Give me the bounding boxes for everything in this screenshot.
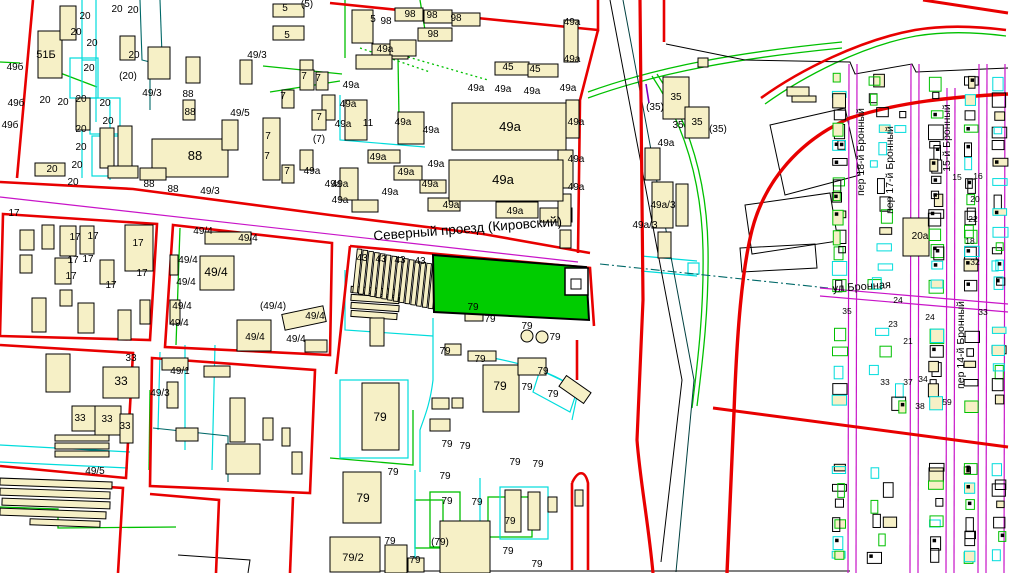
building-number-label: 20 bbox=[75, 124, 87, 135]
building-number-label: 49а bbox=[524, 86, 541, 97]
building-number-label: 20 bbox=[128, 50, 140, 61]
building-number-label: (49/4) bbox=[260, 301, 286, 312]
building-number-label: 7 bbox=[315, 73, 321, 84]
building-number-label: 43 bbox=[394, 255, 406, 266]
building-number-label: 51Б bbox=[36, 49, 55, 61]
building-number-label: 79 bbox=[521, 382, 533, 393]
building bbox=[351, 302, 399, 311]
small-parcel bbox=[992, 464, 1001, 476]
tank-building bbox=[536, 331, 548, 343]
building-number-label: 79 bbox=[509, 457, 521, 468]
building-number-label: 20 bbox=[75, 94, 87, 105]
small-building bbox=[933, 539, 937, 543]
small-parcel bbox=[965, 331, 980, 342]
small-parcel bbox=[931, 329, 944, 342]
building-number-label: 49а bbox=[398, 167, 415, 178]
building-number-label: 49а bbox=[428, 159, 445, 170]
building-number-label: 17 bbox=[132, 238, 144, 249]
building-number-label: (35) bbox=[709, 124, 727, 135]
building-number-label: 79 bbox=[549, 332, 561, 343]
building-number-label: 33 bbox=[125, 353, 137, 364]
building-number-label: 49а bbox=[507, 206, 524, 217]
building-number-label: (20) bbox=[119, 71, 137, 82]
building-number-label: 35 bbox=[691, 117, 703, 128]
small-building bbox=[835, 212, 839, 216]
small-parcel bbox=[900, 112, 906, 118]
building bbox=[55, 435, 109, 441]
building-number-label: 24 bbox=[925, 312, 935, 322]
small-parcel bbox=[965, 551, 975, 562]
small-building bbox=[933, 193, 937, 197]
small-building bbox=[968, 502, 972, 506]
highlighted-parcel[interactable] bbox=[433, 255, 589, 320]
map-canvas: 51Б49б49б49б20202020202020(20)2020202020… bbox=[0, 0, 1009, 573]
building-number-label: 7 bbox=[265, 131, 271, 142]
small-parcel bbox=[833, 123, 843, 136]
small-parcel bbox=[929, 361, 939, 371]
building-number-label: 45 bbox=[502, 62, 514, 73]
building-number-label: 5 bbox=[284, 30, 290, 41]
building-number-label: 7 bbox=[264, 151, 270, 162]
small-parcel bbox=[994, 517, 1005, 528]
building-number-label: 49а/3 bbox=[650, 200, 675, 211]
building-number-label: 49а bbox=[658, 138, 675, 149]
building bbox=[78, 303, 94, 333]
building-number-label: 49а bbox=[468, 83, 485, 94]
building-number-label: 49/5 bbox=[230, 108, 250, 119]
building-number-label: 49а bbox=[568, 154, 585, 165]
building-number-label: 35 bbox=[670, 92, 682, 103]
building-number-label: 49а bbox=[423, 125, 440, 136]
building-number-label: 17 bbox=[69, 232, 81, 243]
building bbox=[792, 96, 816, 102]
building-number-label: 49а bbox=[422, 179, 439, 190]
building-number-label: 49а bbox=[568, 182, 585, 193]
building-number-label: 79 bbox=[387, 467, 399, 478]
building bbox=[42, 225, 54, 249]
small-building bbox=[996, 279, 1000, 283]
small-building bbox=[936, 249, 940, 253]
building bbox=[222, 120, 238, 150]
small-parcel bbox=[992, 345, 1004, 355]
small-parcel bbox=[995, 366, 1003, 379]
small-parcel bbox=[832, 262, 846, 276]
building-number-label: 20 bbox=[75, 142, 87, 153]
small-parcel bbox=[877, 244, 891, 251]
map-viewport[interactable]: 51Б49б49б49б20202020202020(20)2020202020… bbox=[0, 0, 1009, 573]
building-number-label: 11 bbox=[363, 118, 374, 129]
street-name-label: пер 17-й Бронный bbox=[884, 126, 896, 214]
small-parcel bbox=[992, 261, 998, 271]
small-parcel bbox=[833, 537, 843, 550]
building-number-label: 49/4 bbox=[176, 277, 196, 288]
building-number-label: 49а bbox=[332, 195, 349, 206]
building-number-label: (79) bbox=[431, 537, 449, 548]
small-building bbox=[932, 348, 936, 352]
building-number-label: 98 bbox=[404, 9, 416, 20]
small-parcel bbox=[883, 517, 896, 527]
building-number-label: 88 bbox=[143, 179, 155, 190]
small-parcel bbox=[838, 484, 845, 498]
building-number-label: 32 bbox=[970, 257, 980, 267]
building bbox=[452, 398, 463, 408]
building-number-label: 49/4 bbox=[204, 265, 228, 279]
small-parcel bbox=[835, 328, 846, 340]
building bbox=[148, 47, 170, 79]
building-number-label: 16 bbox=[973, 171, 983, 181]
small-building bbox=[835, 539, 839, 543]
building bbox=[0, 488, 110, 499]
small-parcel bbox=[965, 95, 975, 106]
building bbox=[559, 376, 591, 404]
small-parcel bbox=[992, 327, 1006, 333]
small-building bbox=[835, 143, 839, 147]
building-number-label: 98 bbox=[380, 16, 392, 27]
small-parcel bbox=[895, 126, 906, 133]
building-number-label: 49а/3 bbox=[632, 220, 657, 231]
small-building bbox=[901, 403, 905, 407]
building-number-label: 33 bbox=[119, 421, 131, 432]
building bbox=[55, 451, 109, 457]
building-number-label: 79 bbox=[356, 491, 370, 505]
small-parcel bbox=[883, 483, 893, 498]
building-number-label: 79 bbox=[467, 302, 479, 313]
building-number-label: 49а bbox=[304, 166, 321, 177]
building-number-label: 35 bbox=[672, 120, 684, 131]
small-parcel bbox=[992, 484, 1005, 496]
building bbox=[55, 443, 109, 449]
small-parcel bbox=[929, 468, 943, 482]
building-number-label: 20 bbox=[111, 4, 123, 15]
building-number-label: 7 bbox=[316, 112, 322, 123]
building-number-label: 49/3 bbox=[200, 186, 220, 197]
small-parcel bbox=[997, 501, 1004, 508]
building bbox=[645, 148, 660, 180]
building-number-label: 49/4 bbox=[178, 255, 198, 266]
building-number-label: 33 bbox=[978, 307, 988, 317]
small-parcel bbox=[929, 481, 944, 489]
small-parcel bbox=[869, 365, 878, 374]
building bbox=[30, 519, 100, 527]
small-parcel bbox=[994, 195, 1001, 209]
building-number-label: 88 bbox=[167, 184, 179, 195]
small-parcel bbox=[873, 514, 880, 527]
building-number-label: 88 bbox=[182, 89, 194, 100]
building-number-label: 49а bbox=[335, 119, 352, 130]
building-number-label: (5) bbox=[301, 0, 313, 10]
small-parcel bbox=[929, 229, 940, 240]
small-parcel bbox=[839, 247, 846, 253]
building-number-label: 20 bbox=[71, 160, 83, 171]
small-parcel bbox=[835, 499, 843, 507]
small-parcel bbox=[929, 77, 941, 91]
small-parcel bbox=[834, 464, 845, 471]
building-number-label: 18 bbox=[965, 236, 975, 246]
building-number-label: 79 bbox=[531, 559, 543, 570]
street-name-label: ул Бронная bbox=[832, 279, 891, 295]
small-building bbox=[966, 127, 970, 131]
building-number-label: 33 bbox=[74, 413, 86, 424]
small-building bbox=[966, 469, 970, 473]
building bbox=[676, 184, 688, 226]
street-name-label: пер 14-й Бронный bbox=[955, 301, 967, 389]
small-building bbox=[834, 195, 838, 199]
small-building bbox=[998, 262, 1002, 266]
small-building bbox=[995, 211, 999, 215]
building-number-label: 49а bbox=[443, 200, 460, 211]
building-number-label: 98 bbox=[427, 29, 439, 40]
building-number-label: 79 bbox=[441, 439, 453, 450]
building bbox=[560, 230, 571, 248]
small-parcel bbox=[995, 395, 1003, 404]
small-parcel bbox=[994, 127, 1002, 133]
building-number-label: 17 bbox=[87, 231, 99, 242]
building-number-label: 49а bbox=[564, 54, 581, 65]
small-parcel bbox=[965, 280, 977, 291]
building-number-label: 22 bbox=[968, 214, 978, 224]
building-number-label: 20 bbox=[99, 98, 111, 109]
small-building bbox=[967, 485, 971, 489]
building bbox=[100, 128, 114, 168]
small-parcel bbox=[834, 110, 845, 120]
building bbox=[390, 40, 416, 56]
building bbox=[176, 428, 198, 441]
building-number-label: 79 bbox=[439, 346, 451, 357]
building-number-label: 49/4 bbox=[245, 332, 265, 343]
building bbox=[226, 444, 260, 474]
small-parcel bbox=[930, 516, 943, 527]
small-parcel bbox=[833, 384, 847, 395]
building-number-label: 20 bbox=[79, 11, 91, 22]
building-number-label: 49а bbox=[499, 119, 521, 134]
building-number-label: 35 bbox=[842, 306, 852, 316]
building-number-label: 79 bbox=[409, 555, 421, 566]
small-building bbox=[931, 212, 935, 216]
small-parcel bbox=[965, 401, 978, 413]
building-number-label: 20 bbox=[970, 194, 980, 204]
building-number-label: 79 bbox=[547, 389, 559, 400]
building-number-label: 20 bbox=[46, 164, 58, 175]
building-number-label: 49а bbox=[395, 117, 412, 128]
building-number-label: 17 bbox=[82, 254, 94, 265]
building-number-label: 49а bbox=[564, 17, 581, 28]
building bbox=[273, 4, 304, 17]
building bbox=[282, 428, 290, 446]
building-number-label: 20 bbox=[127, 5, 139, 16]
small-parcel bbox=[899, 401, 906, 413]
small-parcel bbox=[996, 243, 1003, 251]
small-parcel bbox=[965, 531, 975, 538]
small-parcel bbox=[930, 142, 940, 149]
building bbox=[108, 166, 138, 178]
building-number-label: 20а bbox=[912, 231, 929, 242]
building-number-label: 79 bbox=[493, 379, 507, 393]
small-parcel bbox=[993, 227, 1008, 237]
building-number-label: 23 bbox=[888, 319, 898, 329]
small-building bbox=[840, 143, 844, 147]
building bbox=[305, 340, 327, 352]
building-number-label: 33 bbox=[114, 374, 128, 388]
building-number-label: 43 bbox=[356, 253, 368, 264]
building-number-label: 33 bbox=[101, 414, 113, 425]
building-number-label: 79 bbox=[504, 516, 516, 527]
small-parcel bbox=[931, 280, 943, 288]
building bbox=[170, 255, 178, 275]
building-number-label: 79 bbox=[384, 536, 396, 547]
small-building bbox=[966, 261, 970, 265]
building bbox=[0, 478, 112, 489]
building-number-label: 20 bbox=[102, 116, 114, 127]
building-number-label: 7 bbox=[280, 91, 286, 102]
building bbox=[20, 255, 32, 273]
small-parcel bbox=[992, 141, 1004, 150]
building bbox=[230, 398, 245, 442]
small-parcel bbox=[933, 92, 939, 98]
small-parcel bbox=[936, 499, 943, 507]
building-number-label: 20 bbox=[57, 97, 69, 108]
small-parcel bbox=[928, 384, 938, 397]
building-number-label: 79 bbox=[459, 441, 471, 452]
small-parcel bbox=[878, 264, 892, 270]
building-number-label: 49а bbox=[325, 179, 342, 190]
building-number-label: 49б bbox=[2, 119, 19, 131]
street-name-label: пер 18-й Бронный bbox=[855, 108, 867, 196]
building-number-label: 49а bbox=[343, 80, 360, 91]
small-building bbox=[967, 249, 971, 253]
building-number-label: 49а bbox=[568, 117, 585, 128]
small-parcel bbox=[969, 76, 975, 88]
building-number-label: 38 bbox=[915, 401, 925, 411]
building-number-label: 88 bbox=[184, 107, 196, 118]
small-parcel bbox=[930, 346, 943, 358]
building bbox=[186, 57, 200, 83]
building-number-label: 37 bbox=[903, 377, 913, 387]
small-parcel bbox=[833, 94, 846, 108]
small-parcel bbox=[870, 94, 877, 105]
building-number-label: 49а bbox=[382, 187, 399, 198]
small-parcel bbox=[879, 534, 885, 546]
building bbox=[118, 126, 132, 168]
building-number-label: 17 bbox=[67, 255, 79, 266]
small-building bbox=[995, 160, 999, 164]
building-number-label: 43 bbox=[375, 254, 387, 265]
small-parcel bbox=[966, 518, 973, 532]
small-parcel bbox=[928, 213, 940, 226]
small-building bbox=[1001, 534, 1005, 538]
small-parcel bbox=[833, 231, 840, 245]
building bbox=[204, 366, 230, 377]
small-building bbox=[934, 178, 938, 182]
building bbox=[356, 55, 392, 69]
small-parcel bbox=[832, 395, 846, 405]
building bbox=[60, 290, 72, 306]
small-building bbox=[967, 145, 971, 149]
building-number-label: 49а bbox=[560, 83, 577, 94]
small-parcel bbox=[992, 379, 1003, 391]
building-number-label: 33 bbox=[880, 377, 890, 387]
building bbox=[548, 497, 557, 512]
building-number-label: 5 bbox=[282, 3, 288, 14]
building-number-label: 49/4 bbox=[286, 334, 306, 345]
small-building bbox=[869, 554, 873, 558]
building bbox=[528, 492, 540, 530]
small-parcel bbox=[876, 328, 889, 335]
building bbox=[352, 200, 378, 212]
building-number-label: 79 bbox=[471, 497, 483, 508]
building bbox=[370, 318, 384, 346]
building-number-label: 49б bbox=[7, 61, 24, 73]
building-number-label: 79 bbox=[537, 366, 549, 377]
building-number-label: 49/4 bbox=[172, 301, 192, 312]
small-parcel bbox=[967, 349, 974, 357]
small-parcel bbox=[835, 551, 844, 559]
street-name-label: Северный проезд (Кировский) bbox=[373, 214, 563, 244]
building bbox=[263, 418, 273, 440]
building bbox=[118, 310, 131, 340]
building-number-label: 49/4 bbox=[238, 233, 258, 244]
building bbox=[430, 419, 450, 431]
building-number-label: 79/2 bbox=[342, 552, 363, 564]
building-number-label: 24 bbox=[893, 295, 903, 305]
small-parcel bbox=[993, 77, 1003, 90]
small-parcel bbox=[994, 277, 1003, 290]
building bbox=[385, 545, 407, 573]
small-parcel bbox=[965, 111, 975, 120]
building-number-label: 20 bbox=[83, 63, 95, 74]
small-building bbox=[967, 282, 971, 286]
building-number-label: 79 bbox=[474, 354, 486, 365]
building-number-label: 49/3 bbox=[247, 50, 267, 61]
building-number-label: 49а bbox=[340, 99, 357, 110]
building bbox=[292, 452, 302, 474]
building-number-label: 49/4 bbox=[193, 226, 213, 237]
building-number-label: 98 bbox=[426, 10, 438, 21]
small-building bbox=[835, 161, 839, 165]
building-number-label: 49а bbox=[370, 152, 387, 163]
building-number-label: 79 bbox=[521, 321, 533, 332]
building bbox=[240, 60, 252, 84]
small-parcel bbox=[833, 73, 840, 82]
building bbox=[32, 298, 46, 332]
small-building bbox=[971, 78, 975, 82]
building bbox=[658, 232, 671, 258]
small-parcel bbox=[880, 346, 891, 357]
building-number-label: 7 bbox=[284, 166, 290, 177]
small-parcel bbox=[871, 500, 878, 513]
building-number-label: 49/3 bbox=[150, 388, 170, 399]
small-parcel bbox=[871, 468, 879, 479]
building-number-label: 5 bbox=[370, 14, 376, 25]
building-number-label: (7) bbox=[313, 134, 325, 145]
small-building bbox=[966, 466, 970, 470]
building bbox=[263, 118, 280, 180]
building-number-label: 49/3 bbox=[142, 88, 162, 99]
building bbox=[20, 230, 34, 250]
building-number-label: 7 bbox=[301, 71, 307, 82]
building-number-label: 45 bbox=[529, 64, 541, 75]
building-number-label: 79 bbox=[373, 410, 387, 424]
building-number-label: 98 bbox=[450, 13, 462, 24]
small-building bbox=[934, 263, 938, 267]
building-number-label: 17 bbox=[136, 268, 148, 279]
building-number-label: 20 bbox=[39, 95, 51, 106]
building-number-label: 15 bbox=[952, 172, 962, 182]
building-number-label: 79 bbox=[441, 496, 453, 507]
building-number-label: 49а bbox=[377, 44, 394, 55]
building bbox=[46, 354, 70, 392]
building-number-label: 20 bbox=[67, 177, 79, 188]
building-number-label: 79 bbox=[439, 471, 451, 482]
